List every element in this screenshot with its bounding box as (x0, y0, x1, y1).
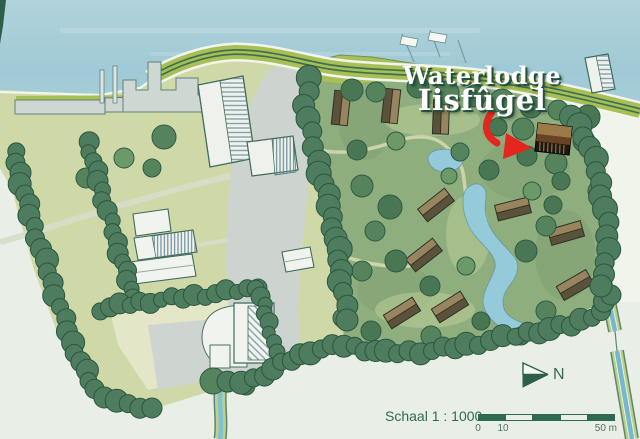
chimney (113, 66, 117, 103)
scale-bar-segment (588, 414, 615, 421)
highlighted-lodge-waterlodge-iisfugel (535, 123, 572, 155)
map-title-line2: Iisfûgel (392, 86, 572, 115)
scale-tick-0: 0 (471, 423, 485, 434)
scale-bar-segment (505, 414, 532, 421)
scale-tick-50: 50 m (589, 423, 617, 434)
scale-bar-segment (533, 414, 560, 421)
scale-label: Schaal 1 : 1000 (385, 408, 482, 424)
scale-tick-10: 10 (494, 423, 512, 434)
scale-bar-segment (478, 414, 505, 421)
scale-bar (478, 414, 615, 421)
north-arrow-icon (523, 363, 548, 387)
chimney (100, 70, 104, 103)
site-plan-map: Waterlodge Iisfûgel Schaal 1 : 1000 0 10… (0, 0, 640, 439)
stream (220, 387, 221, 439)
warehouse-building (247, 136, 298, 176)
north-label: N (553, 366, 565, 384)
scale-bar-segment (560, 414, 587, 421)
